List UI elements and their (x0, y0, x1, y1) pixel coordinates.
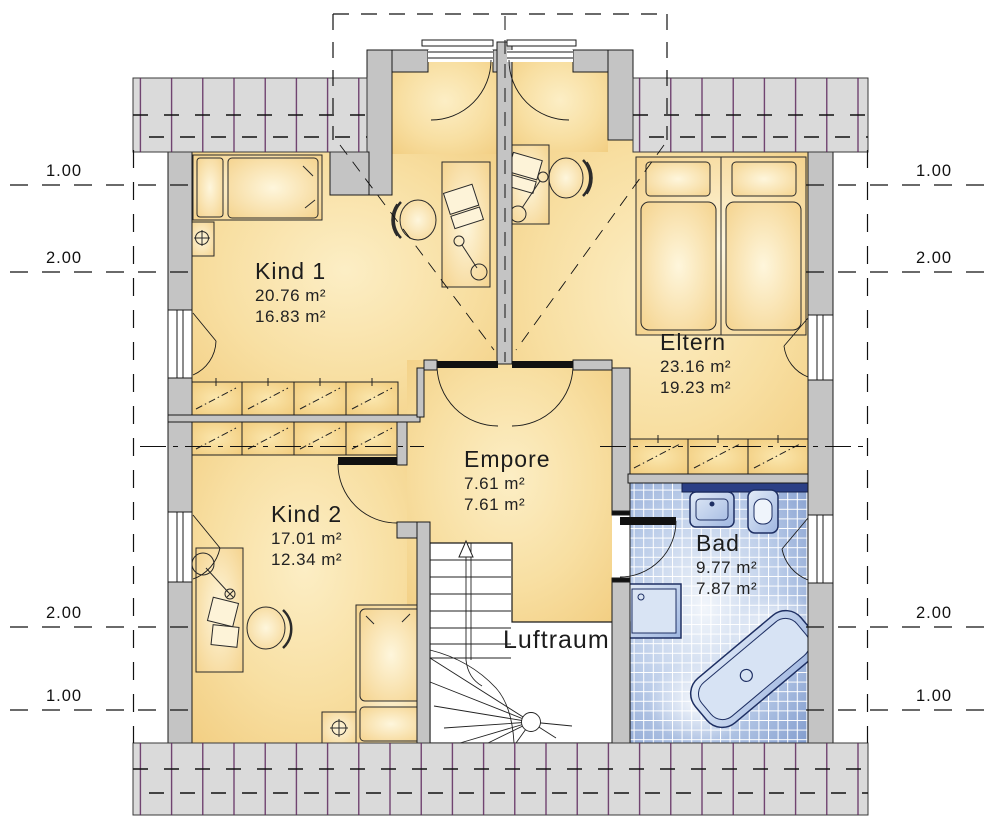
wall-kind2-door-jamb (397, 422, 407, 465)
desk-kind1 (442, 162, 490, 287)
bed-kind1 (193, 155, 322, 220)
desk-kind2 (192, 548, 243, 672)
room-name: Kind 1 (255, 260, 326, 283)
room-label-kind1: Kind 1 20.76 m² 16.83 m² (255, 260, 326, 325)
room-area-net: 19.23 m² (660, 379, 731, 396)
wall-stairwell (417, 522, 430, 743)
wall-stub-eltern-door (573, 360, 612, 370)
roof-band-top-right (633, 78, 868, 152)
floor-plan-page: Kind 1 20.76 m² 16.83 m² Eltern 23.16 m²… (0, 0, 1000, 836)
wardrobe-row-kind2 (190, 422, 398, 455)
wall-eltern-bad (628, 474, 808, 483)
dim-label-right-2: 2.00 (908, 249, 960, 268)
shower (627, 584, 681, 638)
wardrobe-row-kind1 (190, 378, 398, 415)
room-name: Empore (464, 448, 551, 471)
nightstand-kind1 (190, 222, 214, 256)
room-area-net: 16.83 m² (255, 308, 326, 325)
room-area-net: 7.87 m² (696, 580, 757, 597)
room-area-gross: 20.76 m² (255, 287, 326, 304)
bed-eltern (636, 157, 806, 335)
room-area-net: 7.61 m² (464, 496, 551, 513)
wall-empore-bad-upper (612, 368, 630, 515)
wall-divider-kind1-kind2 (168, 415, 420, 422)
room-area-gross: 9.77 m² (696, 559, 757, 576)
dim-label-right-1: 1.00 (908, 162, 960, 181)
dim-label-right-4: 1.00 (908, 687, 960, 706)
wall-dormer-side-right (608, 50, 633, 140)
door-jamb-cap-bottom (612, 578, 630, 582)
room-area-gross: 7.61 m² (464, 475, 551, 492)
room-name: Eltern (660, 331, 731, 354)
roof-band-top-left (133, 78, 367, 152)
wall-empore-west (417, 368, 424, 417)
room-name: Luftraum (503, 628, 610, 653)
roof-band-bottom (133, 743, 868, 815)
dim-label-left-1: 1.00 (38, 162, 90, 181)
room-label-bad: Bad 9.77 m² 7.87 m² (696, 532, 757, 597)
room-name: Bad (696, 532, 757, 555)
dim-label-left-4: 1.00 (38, 687, 90, 706)
sink (690, 492, 734, 527)
dim-label-right-3: 2.00 (908, 604, 960, 623)
room-label-luftraum: Luftraum (503, 628, 610, 653)
door-jamb-cap-top (612, 511, 630, 515)
room-area-net: 12.34 m² (271, 551, 342, 568)
wall-dormer-step-left (330, 152, 369, 195)
toilet (748, 490, 778, 533)
dim-label-left-2: 2.00 (38, 249, 90, 268)
room-label-kind2: Kind 2 17.01 m² 12.34 m² (271, 503, 342, 568)
wall-stub-kind1-door (424, 360, 437, 370)
room-label-empore: Empore 7.61 m² 7.61 m² (464, 448, 551, 513)
room-area-gross: 17.01 m² (271, 530, 342, 547)
dim-label-left-3: 2.00 (38, 604, 90, 623)
room-label-eltern: Eltern 23.16 m² 19.23 m² (660, 331, 731, 396)
floor-plan-drawing (0, 0, 1000, 836)
wardrobe-row-eltern (628, 435, 808, 474)
room-name: Kind 2 (271, 503, 342, 526)
nightstand-kind2 (322, 712, 356, 745)
room-area-gross: 23.16 m² (660, 358, 731, 375)
wall-dormer-side-left (367, 50, 392, 195)
bed-kind2 (356, 605, 426, 745)
wall-empore-bad-lower (612, 578, 630, 743)
